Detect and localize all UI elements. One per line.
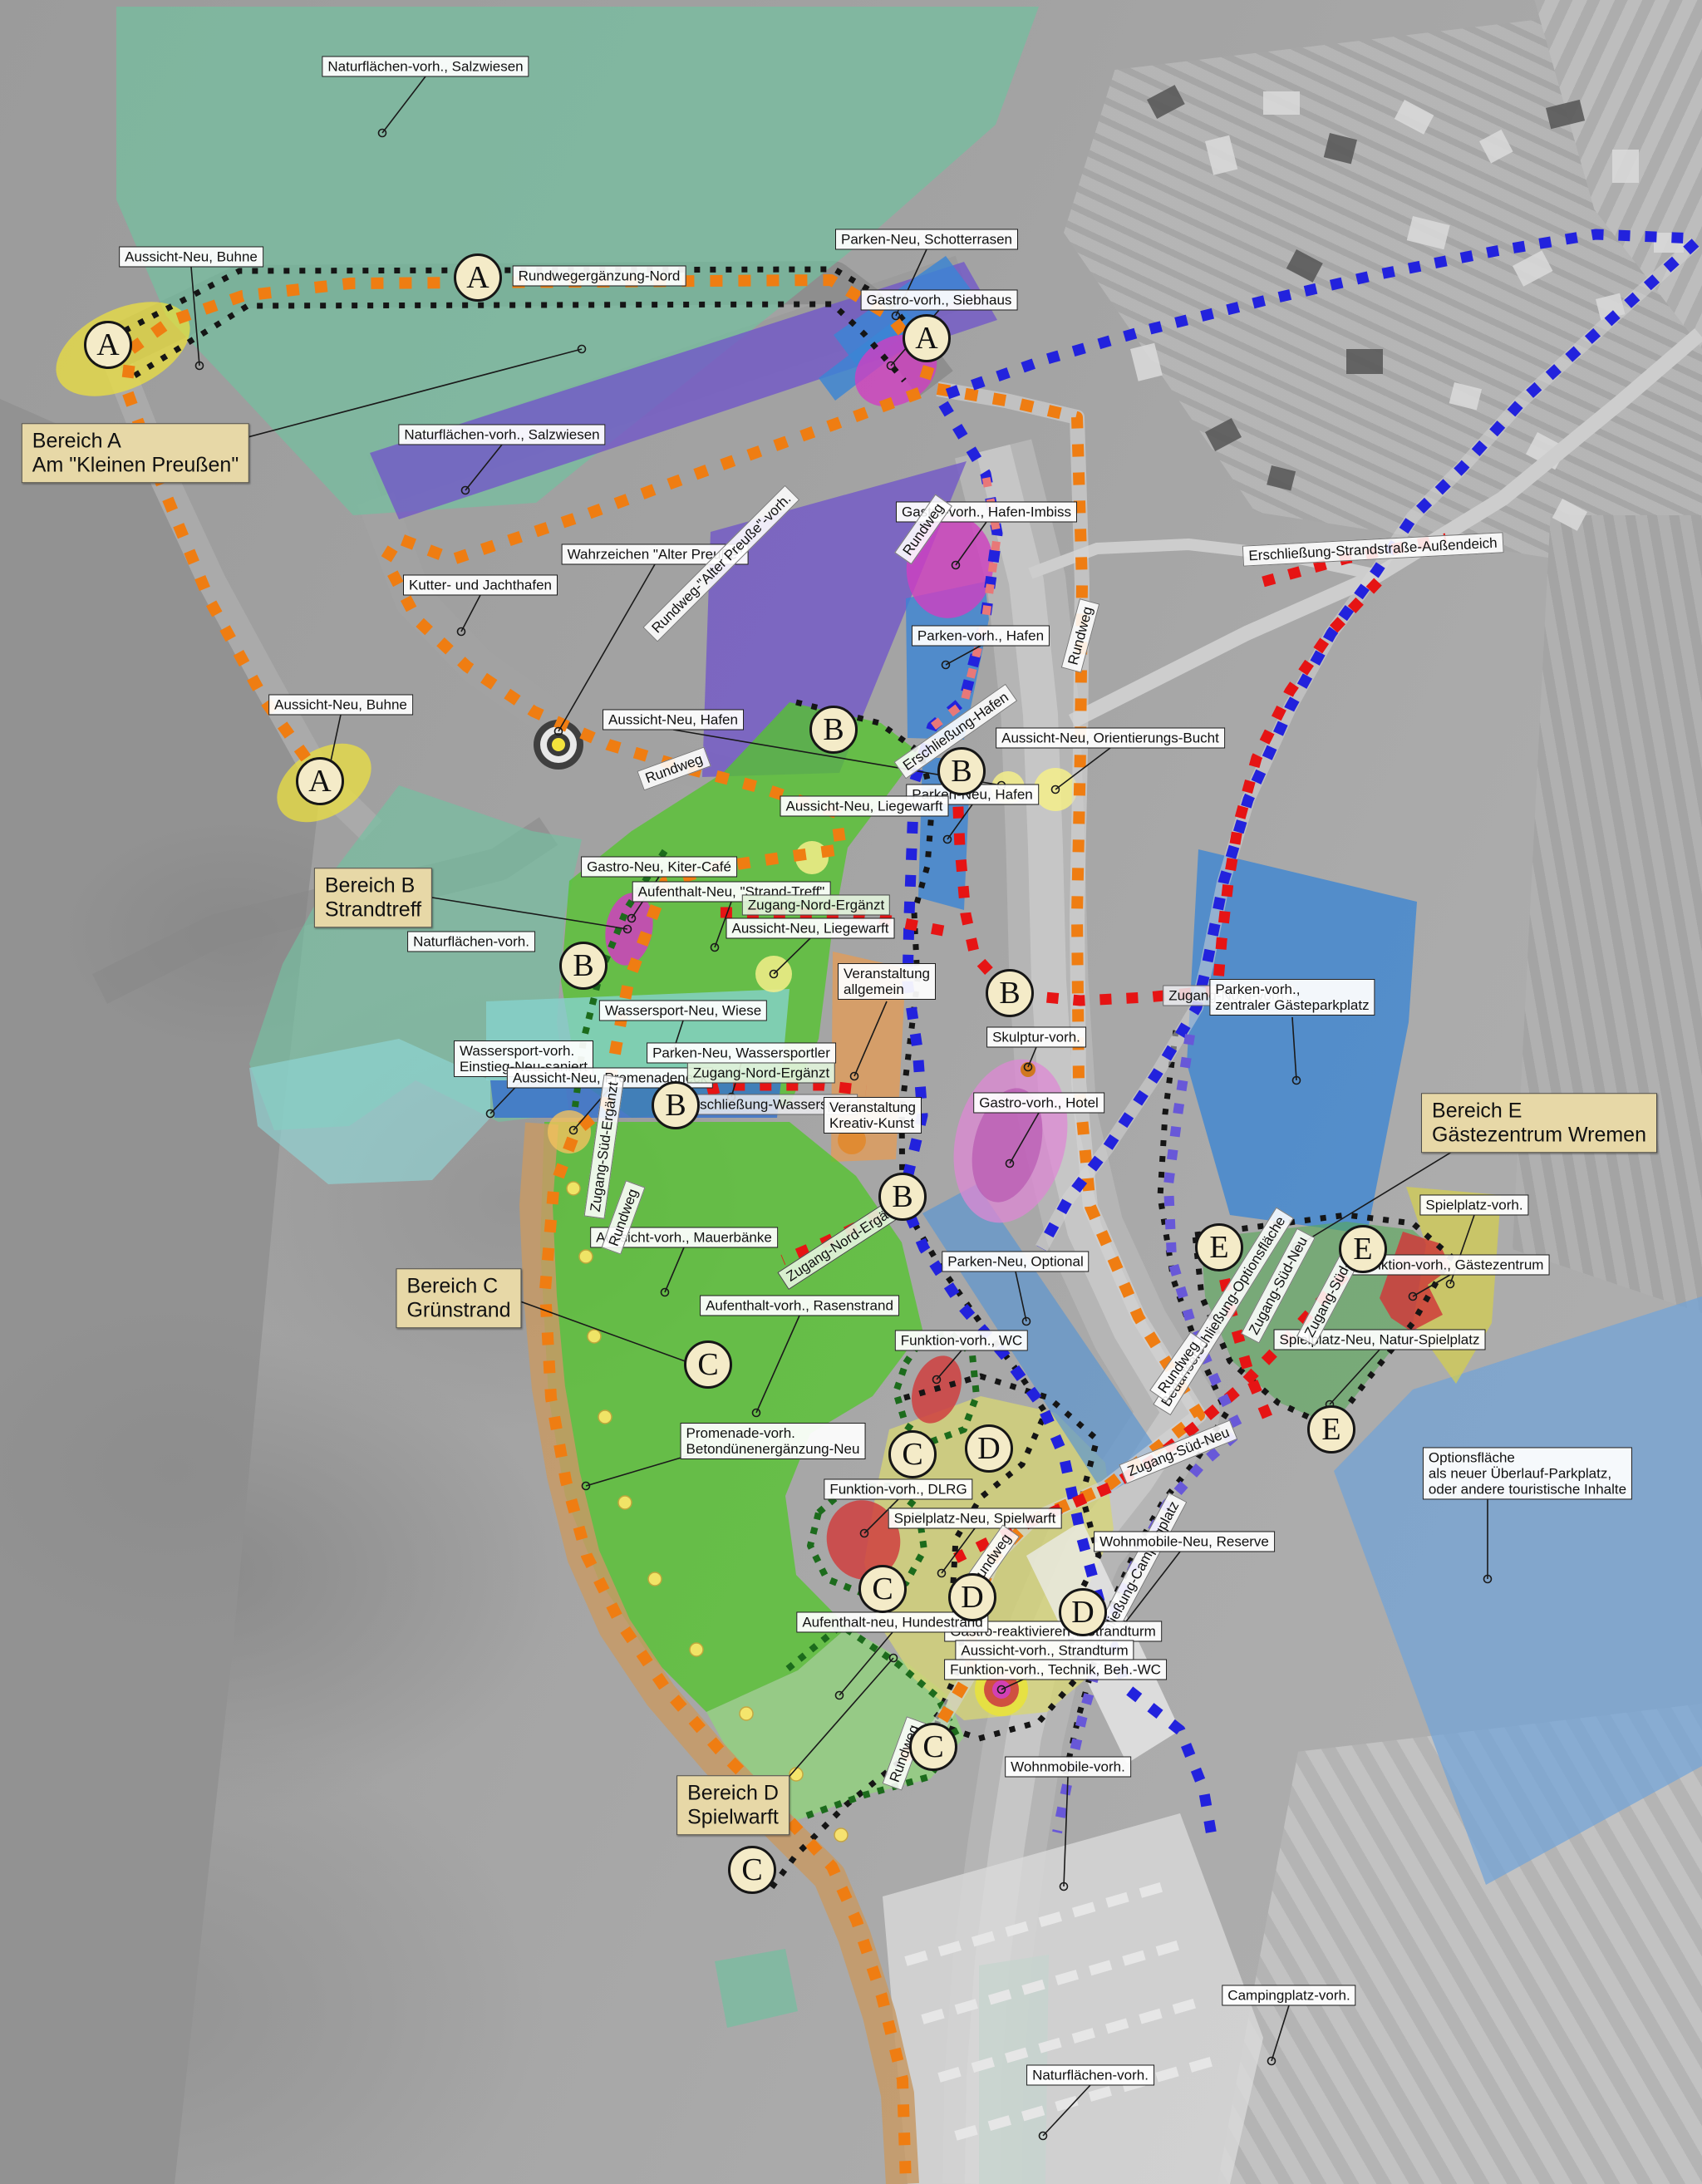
house — [1546, 100, 1585, 129]
area-marker-B: B — [986, 969, 1034, 1017]
bereich-area-label-line: Strandtreff — [325, 898, 421, 922]
bereich-area-label: Bereich AAm "Kleinen Preußen" — [22, 423, 249, 483]
map-annotation-label: Aussicht-Neu, Liegewarft — [780, 795, 949, 816]
map-annotation-label-line: Veranstaltung — [829, 1099, 916, 1115]
house — [1263, 91, 1300, 115]
bereich-area-label-line: Bereich E — [1432, 1099, 1646, 1123]
house — [1324, 133, 1357, 164]
map-annotation-label: Naturflächen-vorh. — [1026, 2064, 1154, 2085]
map-annotation-label: Optionsflächeals neuer Überlauf-Parkplat… — [1423, 1447, 1632, 1499]
leader-line — [1272, 2005, 1289, 2061]
map-annotation-label-line: Optionsfläche — [1429, 1449, 1626, 1465]
map-annotation-label-line: als neuer Überlauf-Parkplatz, — [1429, 1465, 1626, 1481]
map-annotation-label: Wohnmobile-vorh. — [1005, 1756, 1131, 1777]
promenade-light-dot — [567, 1182, 580, 1195]
area-marker-B: B — [937, 747, 986, 795]
area-marker-A: A — [903, 314, 951, 362]
map-annotation-label: Veranstaltungallgemein — [838, 963, 936, 1000]
base-road-village — [1072, 334, 1700, 721]
area-marker-E: E — [1307, 1405, 1355, 1454]
promenade-light-dot — [588, 1330, 601, 1343]
map-annotation-label-line: Parken-vorh., — [1215, 981, 1369, 997]
area-marker-C: C — [684, 1340, 732, 1389]
house — [1205, 418, 1242, 451]
bereich-area-label-line: Bereich C — [406, 1274, 510, 1298]
zone-naturflaechen-sued-2 — [715, 1949, 798, 2028]
area-marker-D: D — [948, 1573, 996, 1621]
bereich-area-label: Bereich CGrünstrand — [396, 1268, 521, 1328]
map-annotation-label: Parken-vorh.,zentraler Gästeparkplatz — [1209, 979, 1375, 1016]
map-annotation-label: Parken-Neu, Optional — [942, 1251, 1089, 1272]
house — [1407, 216, 1450, 249]
bereich-area-label-line: Spielwarft — [687, 1805, 779, 1829]
map-annotation-label: Zugang-Nord-Ergänzt — [742, 894, 890, 915]
map-annotation-label: Campingplatz-vorh. — [1222, 1985, 1355, 2005]
bereich-area-label: Bereich DSpielwarft — [676, 1775, 790, 1835]
bereich-area-label-line: Grünstrand — [406, 1298, 510, 1322]
promenade-light-dot — [618, 1496, 632, 1509]
area-marker-A: A — [296, 757, 344, 805]
area-marker-A: A — [84, 321, 132, 369]
map-annotation-label-line: Betondünenergänzung-Neu — [686, 1441, 860, 1457]
house — [1130, 343, 1163, 381]
house — [1552, 499, 1587, 531]
promenade-light-dot — [648, 1572, 662, 1586]
house — [1612, 150, 1639, 183]
area-marker-C: C — [888, 1430, 937, 1478]
path-erschliessung-nord-blau — [947, 234, 1695, 394]
map-annotation-label: Naturflächen-vorh., Salzwiesen — [398, 424, 605, 445]
promenade-light-dot — [598, 1410, 612, 1424]
house — [1286, 249, 1323, 283]
map-annotation-label: Aussicht-vorh., Strandturm — [955, 1640, 1134, 1660]
promenade-light-dot — [579, 1250, 593, 1263]
leader-line — [461, 595, 480, 632]
area-marker-E: E — [1195, 1223, 1243, 1272]
bereich-area-label-line: Am "Kleinen Preußen" — [32, 453, 239, 477]
bereich-area-label-line: Bereich B — [325, 873, 421, 898]
map-annotation-label: Aussicht-Neu, Orientierungs-Bucht — [996, 727, 1225, 748]
map-annotation-label-line: zentraler Gästeparkplatz — [1215, 997, 1369, 1013]
map-annotation-label: Funktion-vorh., WC — [895, 1330, 1028, 1350]
area-marker-B: B — [652, 1081, 700, 1129]
area-marker-D: D — [1059, 1588, 1107, 1636]
map-annotation-label: Naturflächen-vorh. — [407, 931, 535, 952]
map-annotation-label-line: Veranstaltung — [844, 966, 930, 981]
map-annotation-label-line: Wassersport-vorh. — [460, 1043, 588, 1059]
area-marker-C: C — [909, 1723, 957, 1771]
house — [1147, 85, 1185, 119]
house — [1346, 349, 1383, 374]
area-marker-A: A — [454, 253, 502, 302]
map-annotation-label: Parken-vorh., Hafen — [912, 625, 1050, 646]
map-annotation-label: Rundwegergänzung-Nord — [513, 265, 686, 286]
map-annotation-label: Wohnmobile-Neu, Reserve — [1094, 1531, 1275, 1552]
mark-wahrzeichen-kern — [552, 738, 565, 751]
map-annotation-label: Funktion-vorh., Technik, Beh.-WC — [944, 1659, 1167, 1680]
area-marker-B: B — [809, 706, 858, 754]
house — [1395, 100, 1434, 135]
map-annotation-label: Gastro-vorh., Hotel — [973, 1092, 1104, 1113]
mark-skulptur-punkt — [1021, 1062, 1035, 1077]
area-marker-C: C — [728, 1846, 776, 1894]
area-marker-E: E — [1339, 1225, 1387, 1273]
map-annotation-label-line: Kreativ-Kunst — [829, 1115, 916, 1131]
map-annotation-label: Parken-Neu, Wassersportler — [647, 1042, 836, 1063]
area-marker-C: C — [858, 1565, 907, 1613]
bereich-area-label: Bereich BStrandtreff — [314, 868, 432, 927]
map-annotation-label: Skulptur-vorh. — [986, 1026, 1086, 1047]
zone-optionsflaeche — [1334, 1296, 1702, 1885]
map-annotation-label: Naturflächen-vorh., Salzwiesen — [322, 56, 529, 76]
house — [1449, 382, 1482, 410]
map-annotation-label: Spielplatz-vorh. — [1419, 1194, 1528, 1215]
promenade-light-dot — [690, 1643, 703, 1656]
map-annotation-label: Promenade-vorh.Betondünenergänzung-Neu — [681, 1423, 866, 1459]
zone-campingplatz — [883, 1813, 1263, 2184]
map-annotation-label: Aussicht-Neu, Buhne — [119, 246, 263, 267]
map-annotation-label: Aussicht-Neu, Hafen — [603, 709, 744, 730]
map-annotation-label: Gastro-vorh., Siebhaus — [861, 289, 1018, 310]
bereich-area-label-line: Bereich D — [687, 1781, 779, 1805]
house — [1513, 250, 1552, 287]
map-annotation-label: VeranstaltungKreativ-Kunst — [824, 1097, 922, 1134]
map-annotation-label: Funktion-vorh., DLRG — [824, 1478, 972, 1499]
map-annotation-label: Zugang-Nord-Ergänzt — [687, 1062, 835, 1083]
map-annotation-label: Aufenthalt-vorh., Rasenstrand — [700, 1295, 899, 1316]
house — [1267, 465, 1296, 491]
map-annotation-label: Aussicht-Neu, Liegewarft — [726, 917, 895, 938]
bereich-area-label: Bereich EGästezentrum Wremen — [1421, 1093, 1657, 1153]
area-marker-B: B — [559, 942, 608, 990]
house — [1479, 130, 1513, 164]
promenade-light-dot — [740, 1707, 753, 1720]
area-marker-B: B — [878, 1173, 927, 1221]
promenade-light-dot — [834, 1828, 848, 1842]
planning-map: Naturflächen-vorh., SalzwiesenAussicht-N… — [0, 0, 1702, 2184]
bereich-area-label-line: Bereich A — [32, 429, 239, 453]
map-annotation-label: Gastro-Neu, Kiter-Café — [581, 856, 737, 877]
map-annotation-label-line: allgemein — [844, 981, 930, 997]
area-marker-D: D — [965, 1424, 1013, 1473]
map-annotation-label: Parken-Neu, Schotterrasen — [835, 229, 1018, 249]
map-annotation-label: Spielplatz-Neu, Spielwarft — [888, 1508, 1062, 1528]
map-annotation-label: Kutter- und Jachthafen — [403, 574, 558, 595]
map-annotation-label-line: oder andere touristische Inhalte — [1429, 1482, 1626, 1498]
house — [1205, 135, 1237, 175]
leader-line — [558, 564, 655, 731]
map-overlay-graphics — [0, 0, 1702, 2184]
map-annotation-label-line: Promenade-vorh. — [686, 1425, 860, 1441]
map-annotation-label: Aussicht-Neu, Buhne — [268, 694, 413, 715]
bereich-area-label-line: Gästezentrum Wremen — [1432, 1123, 1646, 1147]
map-annotation-label: Wassersport-Neu, Wiese — [599, 1000, 767, 1021]
